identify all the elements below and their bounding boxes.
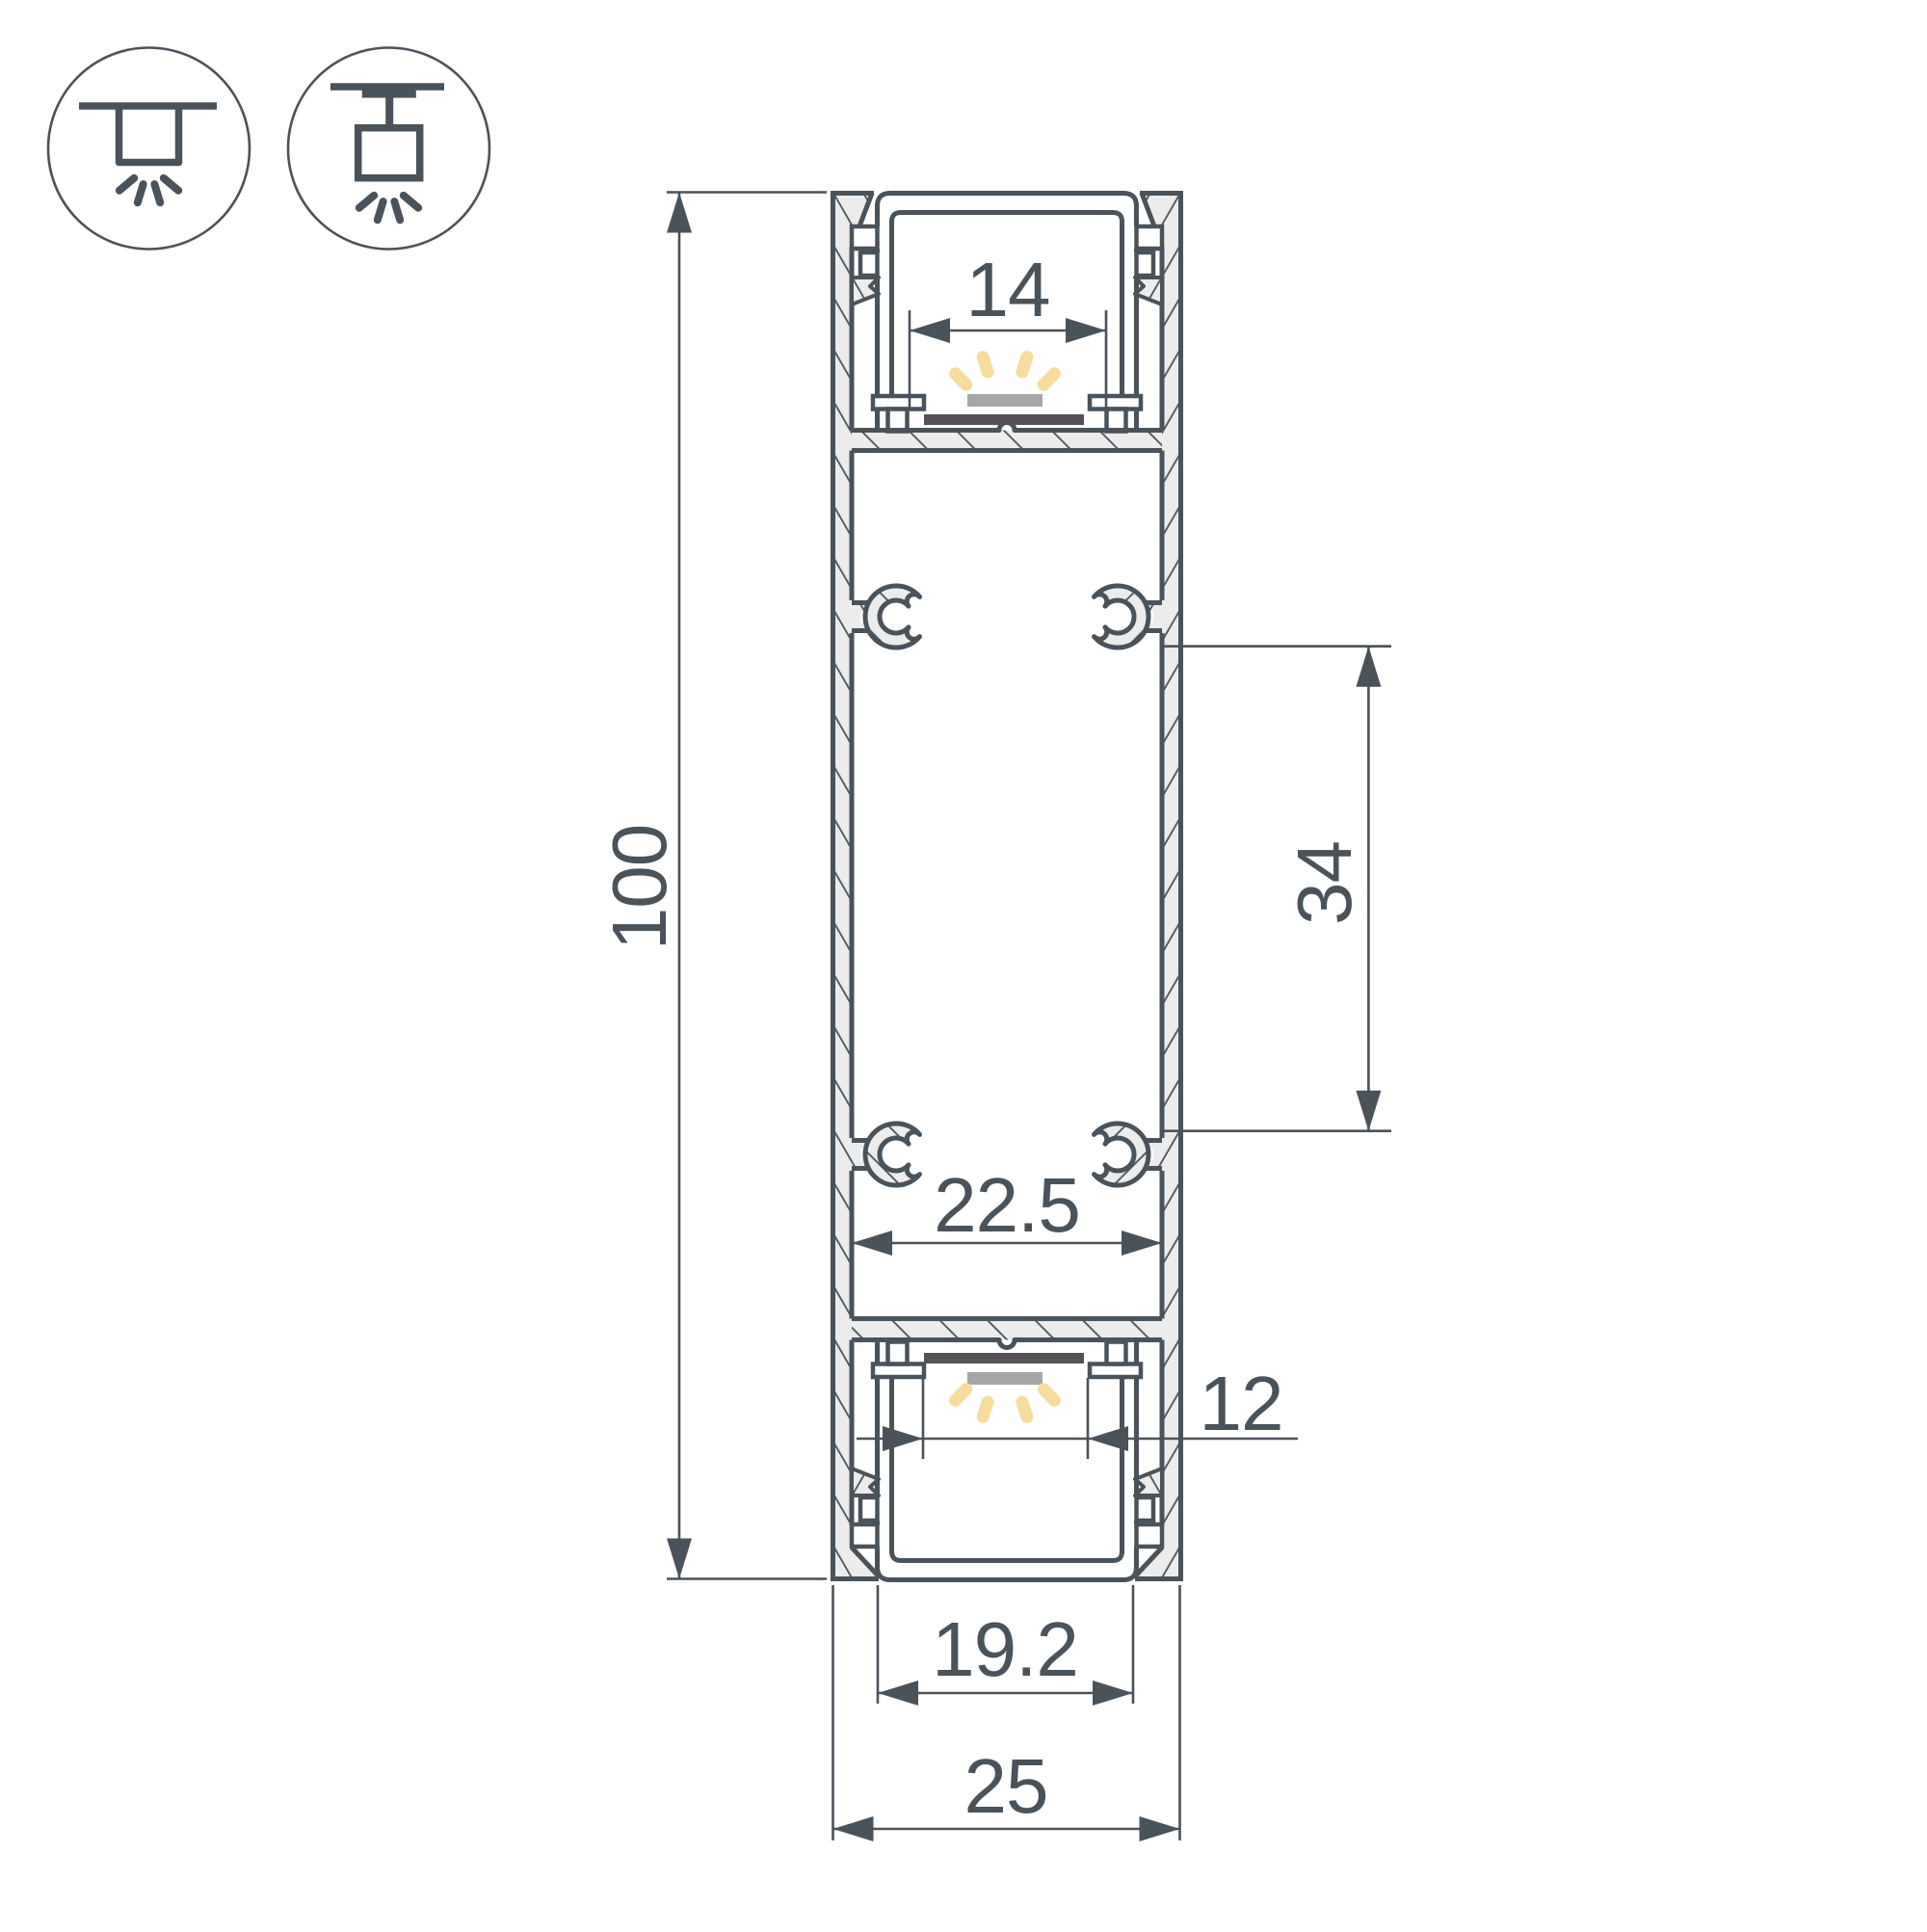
svg-text:12: 12	[1200, 1361, 1283, 1446]
svg-text:25: 25	[964, 1743, 1048, 1829]
svg-text:100: 100	[596, 825, 682, 950]
svg-text:22.5: 22.5	[934, 1162, 1080, 1248]
svg-text:14: 14	[966, 247, 1050, 332]
svg-text:19.2: 19.2	[932, 1606, 1078, 1692]
svg-text:34: 34	[1281, 841, 1367, 925]
